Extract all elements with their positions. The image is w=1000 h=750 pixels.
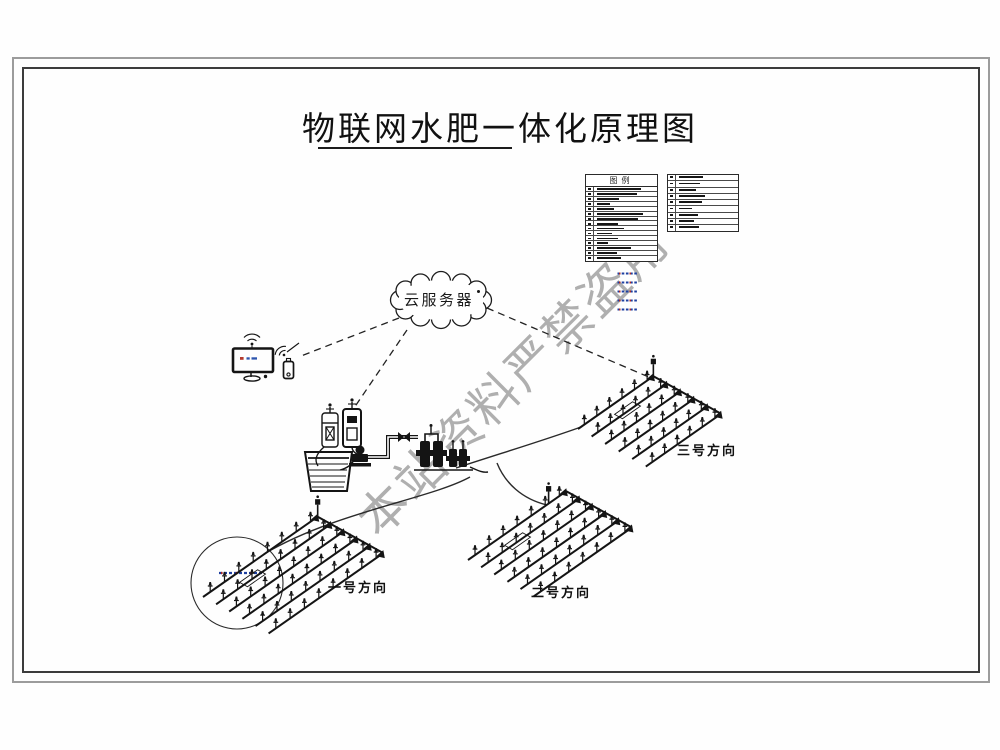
field-label-2: 二号方向 bbox=[531, 582, 591, 601]
cloud-dot bbox=[477, 290, 480, 293]
frame-inner bbox=[22, 67, 980, 673]
legend-row bbox=[586, 256, 657, 261]
field-label-1: 一号方向 bbox=[328, 577, 388, 596]
field-label-3: 三号方向 bbox=[677, 440, 737, 459]
drawing-sheet: 本站资料严禁盗用 bbox=[0, 0, 1000, 750]
legend-rows bbox=[586, 187, 657, 261]
page-title: 物联网水肥一体化原理图 bbox=[0, 102, 1000, 150]
legend-header: 图例 bbox=[586, 175, 657, 187]
legend-table: 图例 bbox=[585, 174, 658, 262]
legend-table-right bbox=[667, 174, 739, 232]
frame-outer bbox=[12, 57, 990, 683]
title-underline bbox=[318, 147, 512, 149]
cloud-label: 云服务器 bbox=[404, 289, 474, 310]
legend-row bbox=[668, 225, 738, 231]
